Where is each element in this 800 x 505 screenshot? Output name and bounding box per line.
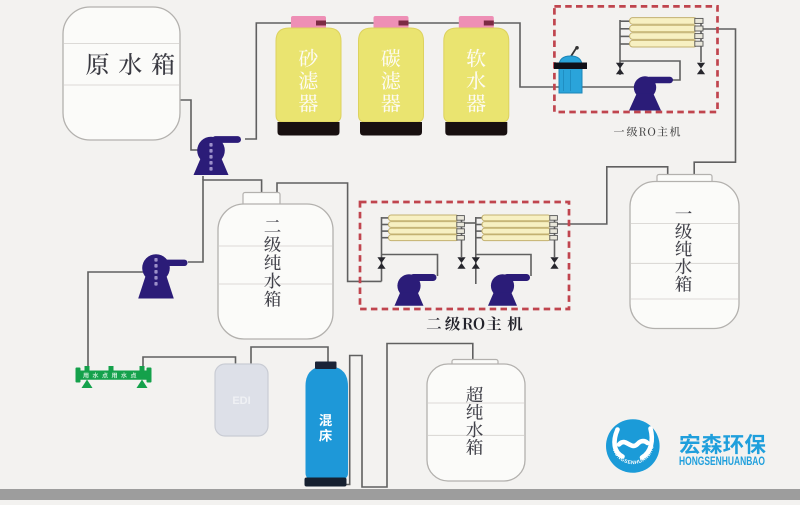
svg-text:HONGSENHUANBAO: HONGSENHUANBAO [679, 456, 765, 468]
svg-text:EDI: EDI [232, 395, 250, 407]
